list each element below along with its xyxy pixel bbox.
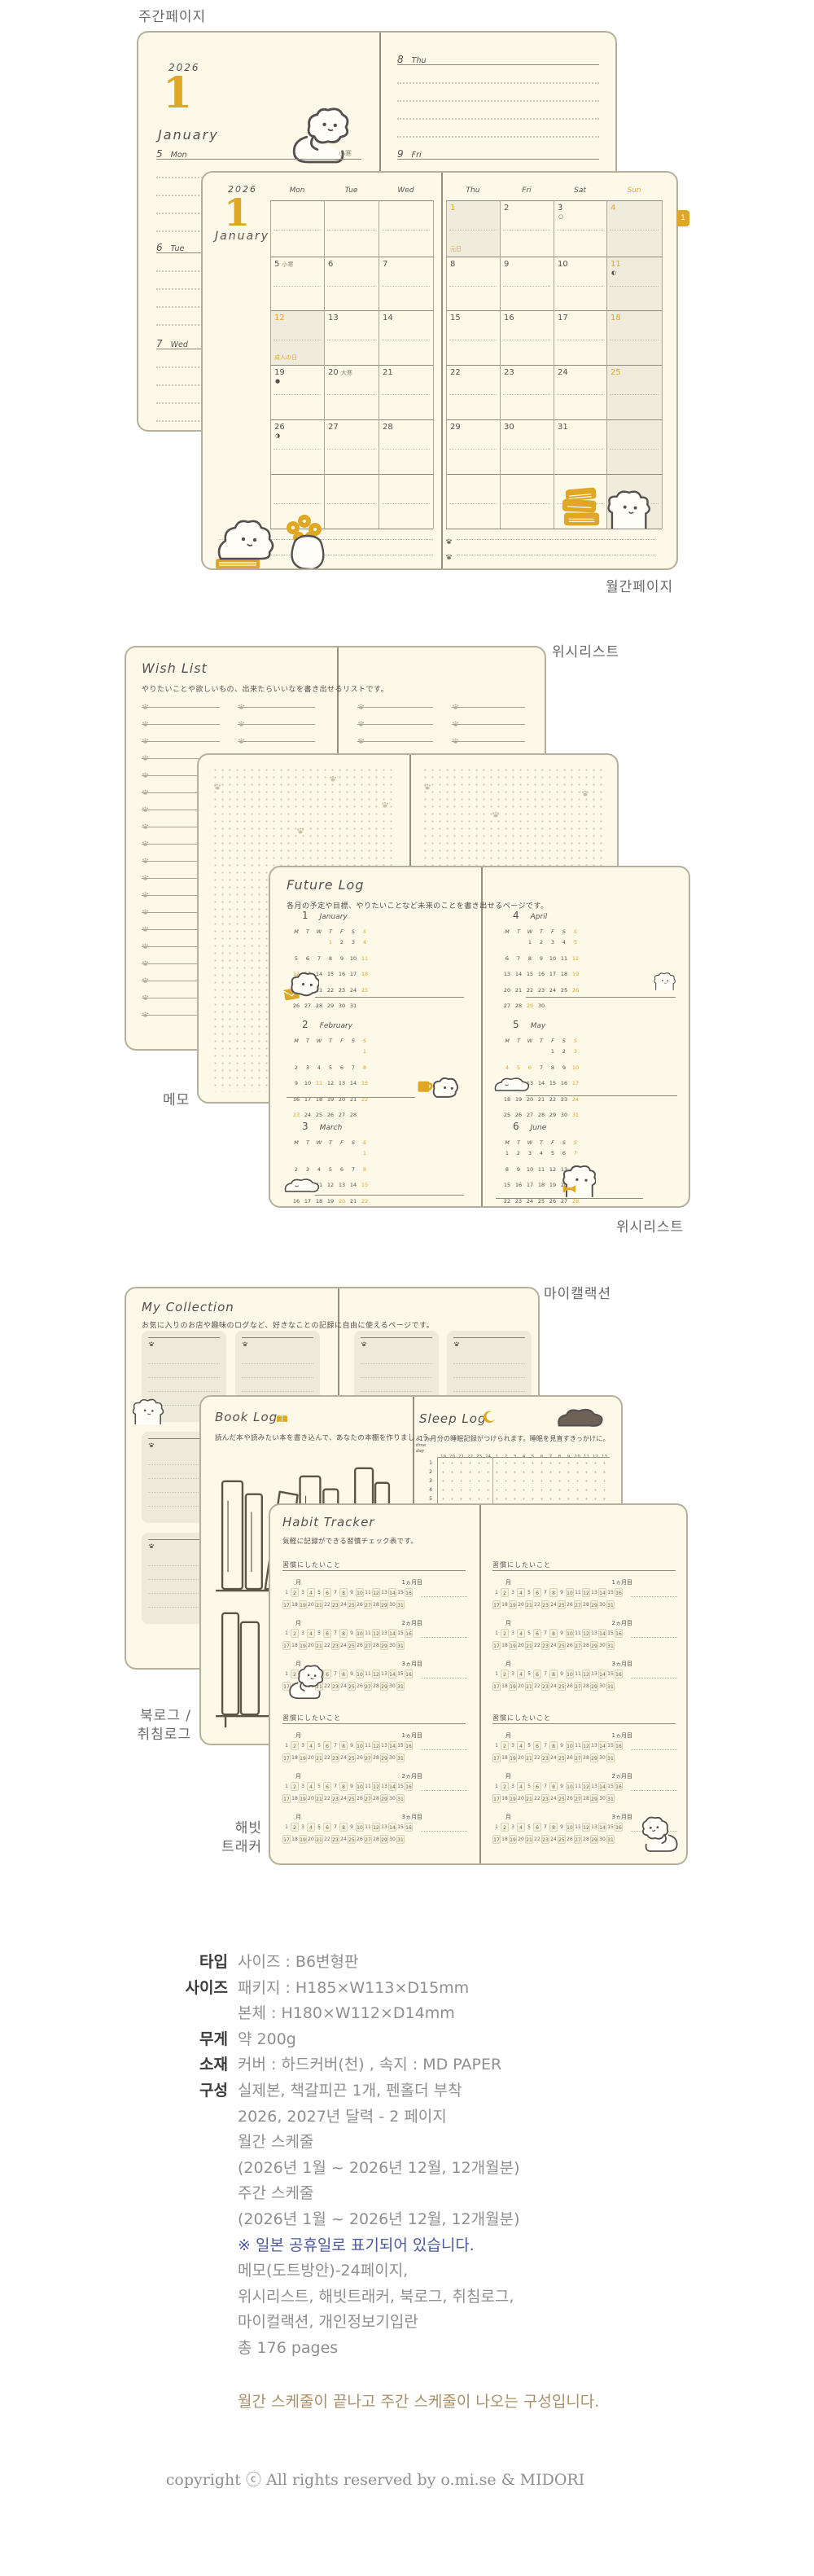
wish-line bbox=[238, 698, 315, 708]
dog-illustration bbox=[653, 972, 679, 994]
spec-row: 무게약 200g bbox=[106, 2027, 676, 2053]
box-title-line bbox=[361, 1337, 432, 1338]
grid-line bbox=[324, 200, 325, 529]
spec-label: 타입 bbox=[106, 1950, 228, 1976]
spec-line: 약 200g bbox=[238, 2027, 296, 2053]
date-number: 3 bbox=[558, 204, 562, 213]
grid-line bbox=[662, 200, 663, 529]
box-dotted-line bbox=[148, 1363, 220, 1364]
date-number: 4 bbox=[610, 204, 615, 213]
habit-block-rule bbox=[282, 1723, 466, 1724]
closing-note: 월간 스케줄이 끝나고 주간 스케줄이 나오는 구성입니다. bbox=[238, 2389, 599, 2411]
cell-dotted-line bbox=[610, 449, 659, 450]
date-number: 20 大寒 bbox=[328, 368, 352, 377]
month-rule bbox=[526, 1095, 677, 1096]
monthly-month-number: 1 bbox=[224, 191, 250, 235]
label-my-collection: 마이캘랙션 bbox=[544, 1285, 611, 1304]
spec-line: 메모(도트방안)-24페이지, bbox=[238, 2258, 520, 2284]
box-dotted-line bbox=[361, 1363, 432, 1364]
spec-row: 소재커버 : 하드커버(천) , 속지 : MD PAPER bbox=[106, 2052, 676, 2078]
box-title-line bbox=[148, 1337, 220, 1338]
habit-block-rule bbox=[492, 1723, 676, 1724]
box-dotted-line bbox=[148, 1377, 220, 1378]
label-weekly-page: 주간페이지 bbox=[138, 8, 206, 27]
cell-dotted-line bbox=[382, 230, 430, 230]
habit-dotted-line bbox=[631, 1749, 677, 1750]
habit-dotted-line bbox=[421, 1596, 467, 1597]
habit-dotted-line bbox=[631, 1678, 677, 1679]
product-detail-page: { "colors":{"accent":"#dfa723","page_bg"… bbox=[0, 0, 814, 2576]
habit-block-rule bbox=[282, 1570, 466, 1571]
cell-dotted-line bbox=[327, 394, 375, 395]
cell-dotted-line bbox=[557, 449, 603, 450]
habit-center-divider bbox=[479, 1505, 481, 1863]
spec-line: 본체 : H180×W112×D14mm bbox=[238, 2001, 469, 2027]
cell-dotted-line bbox=[449, 503, 497, 504]
product-specs: 타입사이즈 : B6변형판사이즈패키지 : H185×W113×D15mm본체 … bbox=[106, 1950, 676, 2362]
dotted-line bbox=[397, 82, 599, 84]
cell-dotted-line bbox=[610, 286, 659, 287]
spec-label: 무게 bbox=[106, 2027, 228, 2053]
habit-dotted-line bbox=[421, 1790, 467, 1791]
date-number: 8 bbox=[450, 260, 455, 269]
habit-number-row: 171819202122232425262728293031 bbox=[492, 1682, 624, 1697]
habit-period-label: 1ヵ月目 bbox=[492, 1578, 632, 1586]
moon-phase-icon: ◐ bbox=[611, 270, 616, 276]
dotted-line bbox=[397, 100, 599, 102]
spec-row: 사이즈패키지 : H185×W113×D15mm본체 : H180×W112×D… bbox=[106, 1976, 676, 2027]
cell-dotted-line bbox=[449, 286, 497, 287]
wish-line bbox=[452, 732, 525, 742]
date-number: 11 bbox=[610, 260, 621, 269]
paw-icon bbox=[492, 805, 500, 821]
spec-line: 패키지 : H185×W113×D15mm bbox=[238, 1976, 469, 2002]
wish-line bbox=[357, 715, 433, 725]
habit-number-row: 171819202122232425262728293031 bbox=[492, 1835, 624, 1850]
month-rule bbox=[315, 1195, 464, 1196]
habit-period-label: 3ヵ月目 bbox=[282, 1813, 422, 1821]
box-dotted-line bbox=[361, 1391, 432, 1392]
date-number: 21 bbox=[383, 368, 393, 377]
cell-dotted-line bbox=[327, 503, 375, 504]
box-dotted-line bbox=[453, 1363, 525, 1364]
spec-values: 패키지 : H185×W113×D15mm본체 : H180×W112×D14m… bbox=[238, 1976, 469, 2027]
paw-icon bbox=[213, 778, 221, 793]
day-header: Tue bbox=[324, 187, 379, 195]
month-rule bbox=[526, 997, 676, 998]
cell-dotted-line bbox=[382, 449, 430, 450]
mini-calendar: 1234567891011121314151617181920212223242… bbox=[501, 932, 581, 1012]
habit-block-label: 習慣にしたいこと bbox=[492, 1714, 551, 1722]
cell-dotted-line bbox=[503, 286, 550, 287]
habit-period-label: 2ヵ月目 bbox=[492, 1772, 632, 1780]
spec-label: 구성 bbox=[106, 2078, 228, 2104]
spec-line: 커버 : 하드커버(천) , 속지 : MD PAPER bbox=[238, 2052, 501, 2078]
cell-dotted-line bbox=[382, 340, 430, 340]
box-title-line bbox=[242, 1337, 313, 1338]
paw-icon bbox=[581, 784, 589, 800]
spec-line: 사이즈 : B6변형판 bbox=[238, 1950, 358, 1976]
spec-line: 위시리스트, 해빗트래커, 북로그, 취침로그, bbox=[238, 2284, 520, 2311]
spec-row: 타입사이즈 : B6변형판 bbox=[106, 1950, 676, 1976]
spec-label: 소재 bbox=[106, 2052, 228, 2078]
wish-line bbox=[142, 732, 220, 742]
wish-line bbox=[452, 715, 525, 725]
sleep-day-number: 4 bbox=[421, 1487, 432, 1493]
day-rule bbox=[397, 159, 599, 160]
habit-dotted-line bbox=[421, 1749, 467, 1750]
cell-dotted-line bbox=[610, 230, 659, 230]
cell-dotted-line bbox=[449, 449, 497, 450]
cell-dotted-line bbox=[274, 286, 321, 287]
date-number: 23 bbox=[504, 368, 514, 377]
date-number: 13 bbox=[328, 314, 339, 323]
cell-dotted-line bbox=[610, 340, 659, 340]
habit-period-label: 3ヵ月目 bbox=[492, 1660, 632, 1668]
month-rule bbox=[315, 997, 464, 998]
date-number: 25 bbox=[610, 368, 621, 377]
habit-dotted-line bbox=[631, 1637, 677, 1638]
cell-dotted-line bbox=[503, 503, 550, 504]
dotted-line bbox=[397, 136, 599, 138]
cell-dotted-line bbox=[557, 230, 603, 230]
habit-dotted-line bbox=[631, 1596, 677, 1597]
dog-envelope-illustration bbox=[282, 968, 319, 1006]
habit-number-row: 171819202122232425262728293031 bbox=[282, 1600, 414, 1616]
box-dotted-line bbox=[242, 1391, 313, 1392]
habit-tracker-spread: Habit Tracker気軽に記録ができる習慣チェック表です。習慣にしたいこと… bbox=[269, 1503, 688, 1865]
date-number: 6 bbox=[328, 260, 333, 269]
cell-dotted-line bbox=[557, 394, 603, 395]
note-dotted-line bbox=[457, 555, 655, 555]
habit-period-label: 1ヵ月目 bbox=[492, 1731, 632, 1740]
cell-dotted-line bbox=[274, 340, 321, 340]
spec-line: 주간 스케줄 bbox=[238, 2181, 520, 2207]
spec-values: 실제본, 책갈피끈 1개, 펜홀더 부착2026, 2027년 달력 - 2 페… bbox=[238, 2078, 520, 2362]
cell-dotted-line bbox=[327, 340, 375, 340]
wish-line bbox=[357, 732, 433, 742]
sleep-log-subtitle: 1ヵ月分の睡眠記録がつけられます。睡眠を見直すきっかけに。 bbox=[419, 1434, 610, 1443]
habit-period-label: 1ヵ月目 bbox=[282, 1578, 422, 1586]
cell-dotted-line bbox=[327, 286, 375, 287]
date-number: 15 bbox=[450, 314, 461, 323]
date-number: 30 bbox=[504, 423, 514, 432]
sleep-day-number: 2 bbox=[421, 1469, 432, 1475]
habit-number-row: 171819202122232425262728293031 bbox=[492, 1641, 624, 1657]
sleep-day-number: 3 bbox=[421, 1478, 432, 1484]
cell-dotted-line bbox=[503, 449, 550, 450]
date-number: 18 bbox=[610, 314, 621, 323]
box-title-line bbox=[453, 1337, 525, 1338]
footer-copyright: copyright ⓒ All rights reserved by o.mi.… bbox=[115, 2468, 636, 2490]
dog-books-illustration bbox=[559, 485, 662, 532]
sleep-grid-line bbox=[437, 1457, 610, 1458]
date-number: 16 bbox=[504, 314, 514, 323]
day-rule bbox=[397, 64, 599, 65]
box-dotted-line bbox=[148, 1391, 220, 1392]
spec-line: (2026년 1월 ~ 2026년 12월, 12개월분) bbox=[238, 2156, 520, 2182]
wish-line bbox=[452, 698, 525, 708]
grid-line bbox=[446, 200, 447, 529]
date-number: 7 bbox=[383, 260, 387, 269]
habit-block-label: 習慣にしたいこと bbox=[492, 1560, 551, 1569]
dark-dog-sleeping-illustration bbox=[556, 1406, 605, 1431]
dog-bow-illustration bbox=[557, 1162, 596, 1202]
grid-line bbox=[270, 200, 433, 201]
futurelog-center-divider bbox=[481, 867, 483, 1206]
habit-number-row: 171819202122232425262728293031 bbox=[282, 1753, 414, 1769]
dog-flowers-illustration bbox=[209, 497, 331, 570]
habit-dotted-line bbox=[421, 1678, 467, 1679]
date-number: 24 bbox=[558, 368, 568, 377]
wish-line bbox=[142, 698, 220, 708]
cell-dotted-line bbox=[449, 394, 497, 395]
monthly-center-divider bbox=[441, 173, 443, 568]
moon-icon bbox=[483, 1411, 496, 1427]
grid-line bbox=[270, 257, 433, 257]
cell-dotted-line bbox=[382, 503, 430, 504]
day-rule bbox=[156, 159, 361, 160]
moon-phase-icon: ● bbox=[275, 378, 280, 384]
grid-line bbox=[500, 200, 501, 529]
date-number: 2 bbox=[504, 204, 509, 213]
spec-line: ※ 일본 공휴일로 표기되어 있습니다. bbox=[238, 2233, 520, 2259]
habit-tracker-title: Habit Tracker bbox=[282, 1515, 375, 1529]
day-header: Sun bbox=[606, 187, 662, 195]
cell-dotted-line bbox=[449, 230, 497, 230]
date-number: 26 bbox=[274, 423, 285, 432]
habit-number-row: 171819202122232425262728293031 bbox=[492, 1753, 624, 1769]
sleep-grid-corner: timeday bbox=[416, 1443, 426, 1455]
mini-month-heading: 3March bbox=[302, 1117, 342, 1133]
grid-line bbox=[270, 419, 433, 420]
paw-icon bbox=[445, 533, 453, 548]
grid-line bbox=[270, 310, 433, 311]
habit-dotted-line bbox=[631, 1790, 677, 1791]
mini-calendar: 1234567891011121314151617181920212223242… bbox=[291, 1041, 370, 1121]
habit-period-label: 2ヵ月目 bbox=[282, 1772, 422, 1780]
cell-dotted-line bbox=[503, 394, 550, 395]
box-dotted-line bbox=[242, 1363, 313, 1364]
habit-block-label: 習慣にしたいこと bbox=[282, 1560, 341, 1569]
grid-line bbox=[554, 200, 554, 529]
wish-line bbox=[238, 732, 315, 742]
paw-icon bbox=[296, 822, 304, 837]
dog-lying-illustration bbox=[493, 1076, 531, 1095]
day-header: Wed bbox=[379, 187, 433, 195]
paw-icon bbox=[381, 796, 389, 811]
dog-sleeping-illustration bbox=[283, 1177, 321, 1196]
day-header: Mon bbox=[270, 187, 324, 195]
grid-line bbox=[270, 474, 433, 475]
mini-month-heading: 1January bbox=[302, 906, 348, 922]
date-number: 31 bbox=[558, 423, 568, 432]
dog-illustration bbox=[131, 1398, 168, 1428]
box-dotted-line bbox=[453, 1391, 525, 1392]
wishlist-title: Wish List bbox=[142, 660, 208, 676]
holiday-name: 元日 bbox=[450, 245, 462, 253]
dog-illustration bbox=[283, 1660, 327, 1703]
date-number: 5 小寒 bbox=[274, 260, 294, 269]
habit-period-label: 2ヵ月目 bbox=[492, 1619, 632, 1627]
future-log-spread: Future Log各月の予定や目標、やりたいことなど未来のことを書き出せるペー… bbox=[269, 866, 690, 1208]
grid-line bbox=[606, 200, 607, 529]
label-book-sleep-log: 북로그 / 취침로그 bbox=[114, 1707, 191, 1744]
date-number: 28 bbox=[383, 423, 393, 432]
date-number: 17 bbox=[558, 314, 568, 323]
habit-dotted-line bbox=[421, 1831, 467, 1832]
cell-dotted-line bbox=[274, 230, 321, 230]
habit-number-row: 171819202122232425262728293031 bbox=[282, 1794, 414, 1810]
moon-phase-icon: ◑ bbox=[275, 432, 280, 439]
cell-dotted-line bbox=[327, 230, 375, 230]
cell-dotted-line bbox=[274, 449, 321, 450]
date-number: 10 bbox=[558, 260, 568, 269]
date-number: 9 bbox=[504, 260, 509, 269]
paw-icon bbox=[329, 770, 337, 785]
spec-line: 월간 스케줄 bbox=[238, 2130, 520, 2156]
cell-dotted-line bbox=[382, 286, 430, 287]
date-number: 29 bbox=[450, 423, 461, 432]
label-memo: 메모 bbox=[163, 1091, 190, 1110]
spec-values: 사이즈 : B6변형판 bbox=[238, 1950, 358, 1976]
day-header: Fri bbox=[500, 187, 554, 195]
cell-dotted-line bbox=[274, 394, 321, 395]
habit-number-row: 171819202122232425262728293031 bbox=[282, 1835, 414, 1850]
monthly-page-spread: 20261JanuaryMonTueWedThuFriSatSun5 小寒671… bbox=[201, 171, 678, 570]
grid-line bbox=[270, 365, 433, 366]
mini-month-heading: 4April bbox=[513, 906, 547, 922]
my-collection-subtitle: お気に入りのお店や趣味のログなど、好きなことの記録に自由に使えるページです。 bbox=[142, 1319, 434, 1330]
mini-month-heading: 2February bbox=[302, 1016, 352, 1031]
paw-icon bbox=[445, 548, 453, 564]
date-number: 22 bbox=[450, 368, 461, 377]
my-collection-title: My Collection bbox=[142, 1300, 234, 1314]
mini-month-heading: 5May bbox=[513, 1016, 545, 1031]
label-wishlist-bottom: 위시리스트 bbox=[616, 1218, 684, 1237]
habit-number-row: 171819202122232425262728293031 bbox=[492, 1600, 624, 1616]
spec-line: 총 176 pages bbox=[238, 2336, 520, 2362]
cell-dotted-line bbox=[557, 286, 603, 287]
habit-block-rule bbox=[492, 1570, 676, 1571]
habit-period-label: 3ヵ月目 bbox=[492, 1813, 632, 1821]
habit-dotted-line bbox=[421, 1637, 467, 1638]
cell-dotted-line bbox=[449, 340, 497, 340]
wish-line bbox=[142, 715, 220, 725]
book-log-title: Book Log bbox=[215, 1410, 278, 1424]
cell-dotted-line bbox=[382, 394, 430, 395]
book-icon bbox=[276, 1411, 288, 1427]
note-dotted-line bbox=[457, 539, 655, 540]
grid-line bbox=[270, 200, 271, 529]
sleep-day-number: 1 bbox=[421, 1460, 432, 1466]
box-dotted-line bbox=[361, 1377, 432, 1378]
spec-values: 약 200g bbox=[238, 2027, 296, 2053]
dog-illustration bbox=[638, 1811, 684, 1855]
box-dotted-line bbox=[242, 1377, 313, 1378]
cell-dotted-line bbox=[610, 394, 659, 395]
mini-calendar: 1234567891011121314151617181920212223242… bbox=[291, 1143, 370, 1208]
month-rule bbox=[287, 1097, 415, 1098]
label-monthly-page: 월간페이지 bbox=[606, 578, 673, 597]
spec-label: 사이즈 bbox=[106, 1976, 228, 2002]
label-habit-tracker: 해빗 트래커 bbox=[203, 1819, 262, 1857]
grid-line bbox=[433, 200, 434, 529]
day-header: Sat bbox=[554, 187, 606, 195]
habit-number-row: 171819202122232425262728293031 bbox=[492, 1794, 624, 1810]
date-number: 12 bbox=[274, 314, 285, 323]
future-log-title: Future Log bbox=[287, 877, 364, 893]
date-number: 1 bbox=[450, 204, 455, 213]
weekly-month-number: 1 bbox=[163, 68, 192, 118]
spec-line: 마이컬랙션, 개인정보기입란 bbox=[238, 2310, 520, 2336]
cell-dotted-line bbox=[557, 340, 603, 340]
date-number: 14 bbox=[383, 314, 393, 323]
month-index-tab: 1 bbox=[676, 210, 689, 226]
spec-line: 2026, 2027년 달력 - 2 페이지 bbox=[238, 2104, 520, 2131]
mini-month-heading: 6June bbox=[513, 1117, 546, 1133]
wish-line bbox=[357, 698, 433, 708]
spec-row: 구성실제본, 책갈피끈 1개, 펜홀더 부착2026, 2027년 달력 - 2… bbox=[106, 2078, 676, 2362]
weekly-month-name: January bbox=[158, 127, 219, 143]
day-header: Thu bbox=[446, 187, 500, 195]
grid-line bbox=[379, 200, 379, 529]
book-log-subtitle: 読んだ本や読みたい本を書き込んで、あなたの本棚を作りましょう。 bbox=[215, 1433, 436, 1442]
spec-values: 커버 : 하드커버(천) , 속지 : MD PAPER bbox=[238, 2052, 501, 2078]
habit-tracker-subtitle: 気軽に記録ができる習慣チェック表です。 bbox=[282, 1536, 418, 1546]
spec-line: 실제본, 책갈피끈 1개, 펜홀더 부착 bbox=[238, 2078, 520, 2104]
date-number: 27 bbox=[328, 423, 339, 432]
habit-number-row: 171819202122232425262728293031 bbox=[282, 1641, 414, 1657]
cell-dotted-line bbox=[503, 340, 550, 340]
monthly-month-name: January bbox=[215, 230, 269, 243]
dotted-line bbox=[397, 118, 599, 120]
spec-line: (2026년 1월 ~ 2026년 12월, 12개월분) bbox=[238, 2207, 520, 2233]
sleep-log-title: Sleep Log bbox=[419, 1411, 487, 1426]
sleep-day-number: 5 bbox=[421, 1496, 432, 1502]
habit-period-label: 1ヵ月目 bbox=[282, 1731, 422, 1740]
habit-block-label: 習慣にしたいこと bbox=[282, 1714, 341, 1722]
wish-line bbox=[238, 715, 315, 725]
dog-mug-illustration bbox=[415, 1074, 459, 1102]
habit-period-label: 2ヵ月目 bbox=[282, 1619, 422, 1627]
date-number: 19 bbox=[274, 368, 285, 377]
moon-phase-icon: ○ bbox=[558, 213, 563, 220]
wishlist-subtitle: やりたいことや欲しいもの、出来たらいいなを書き出せるリストです。 bbox=[142, 683, 388, 694]
box-dotted-line bbox=[453, 1377, 525, 1378]
paw-icon bbox=[423, 778, 431, 793]
cell-dotted-line bbox=[503, 230, 550, 230]
holiday-name: 成人の日 bbox=[274, 353, 297, 362]
almanac-note: 小寒 bbox=[339, 149, 352, 158]
label-wishlist-top: 위시리스트 bbox=[552, 643, 619, 662]
cell-dotted-line bbox=[327, 449, 375, 450]
